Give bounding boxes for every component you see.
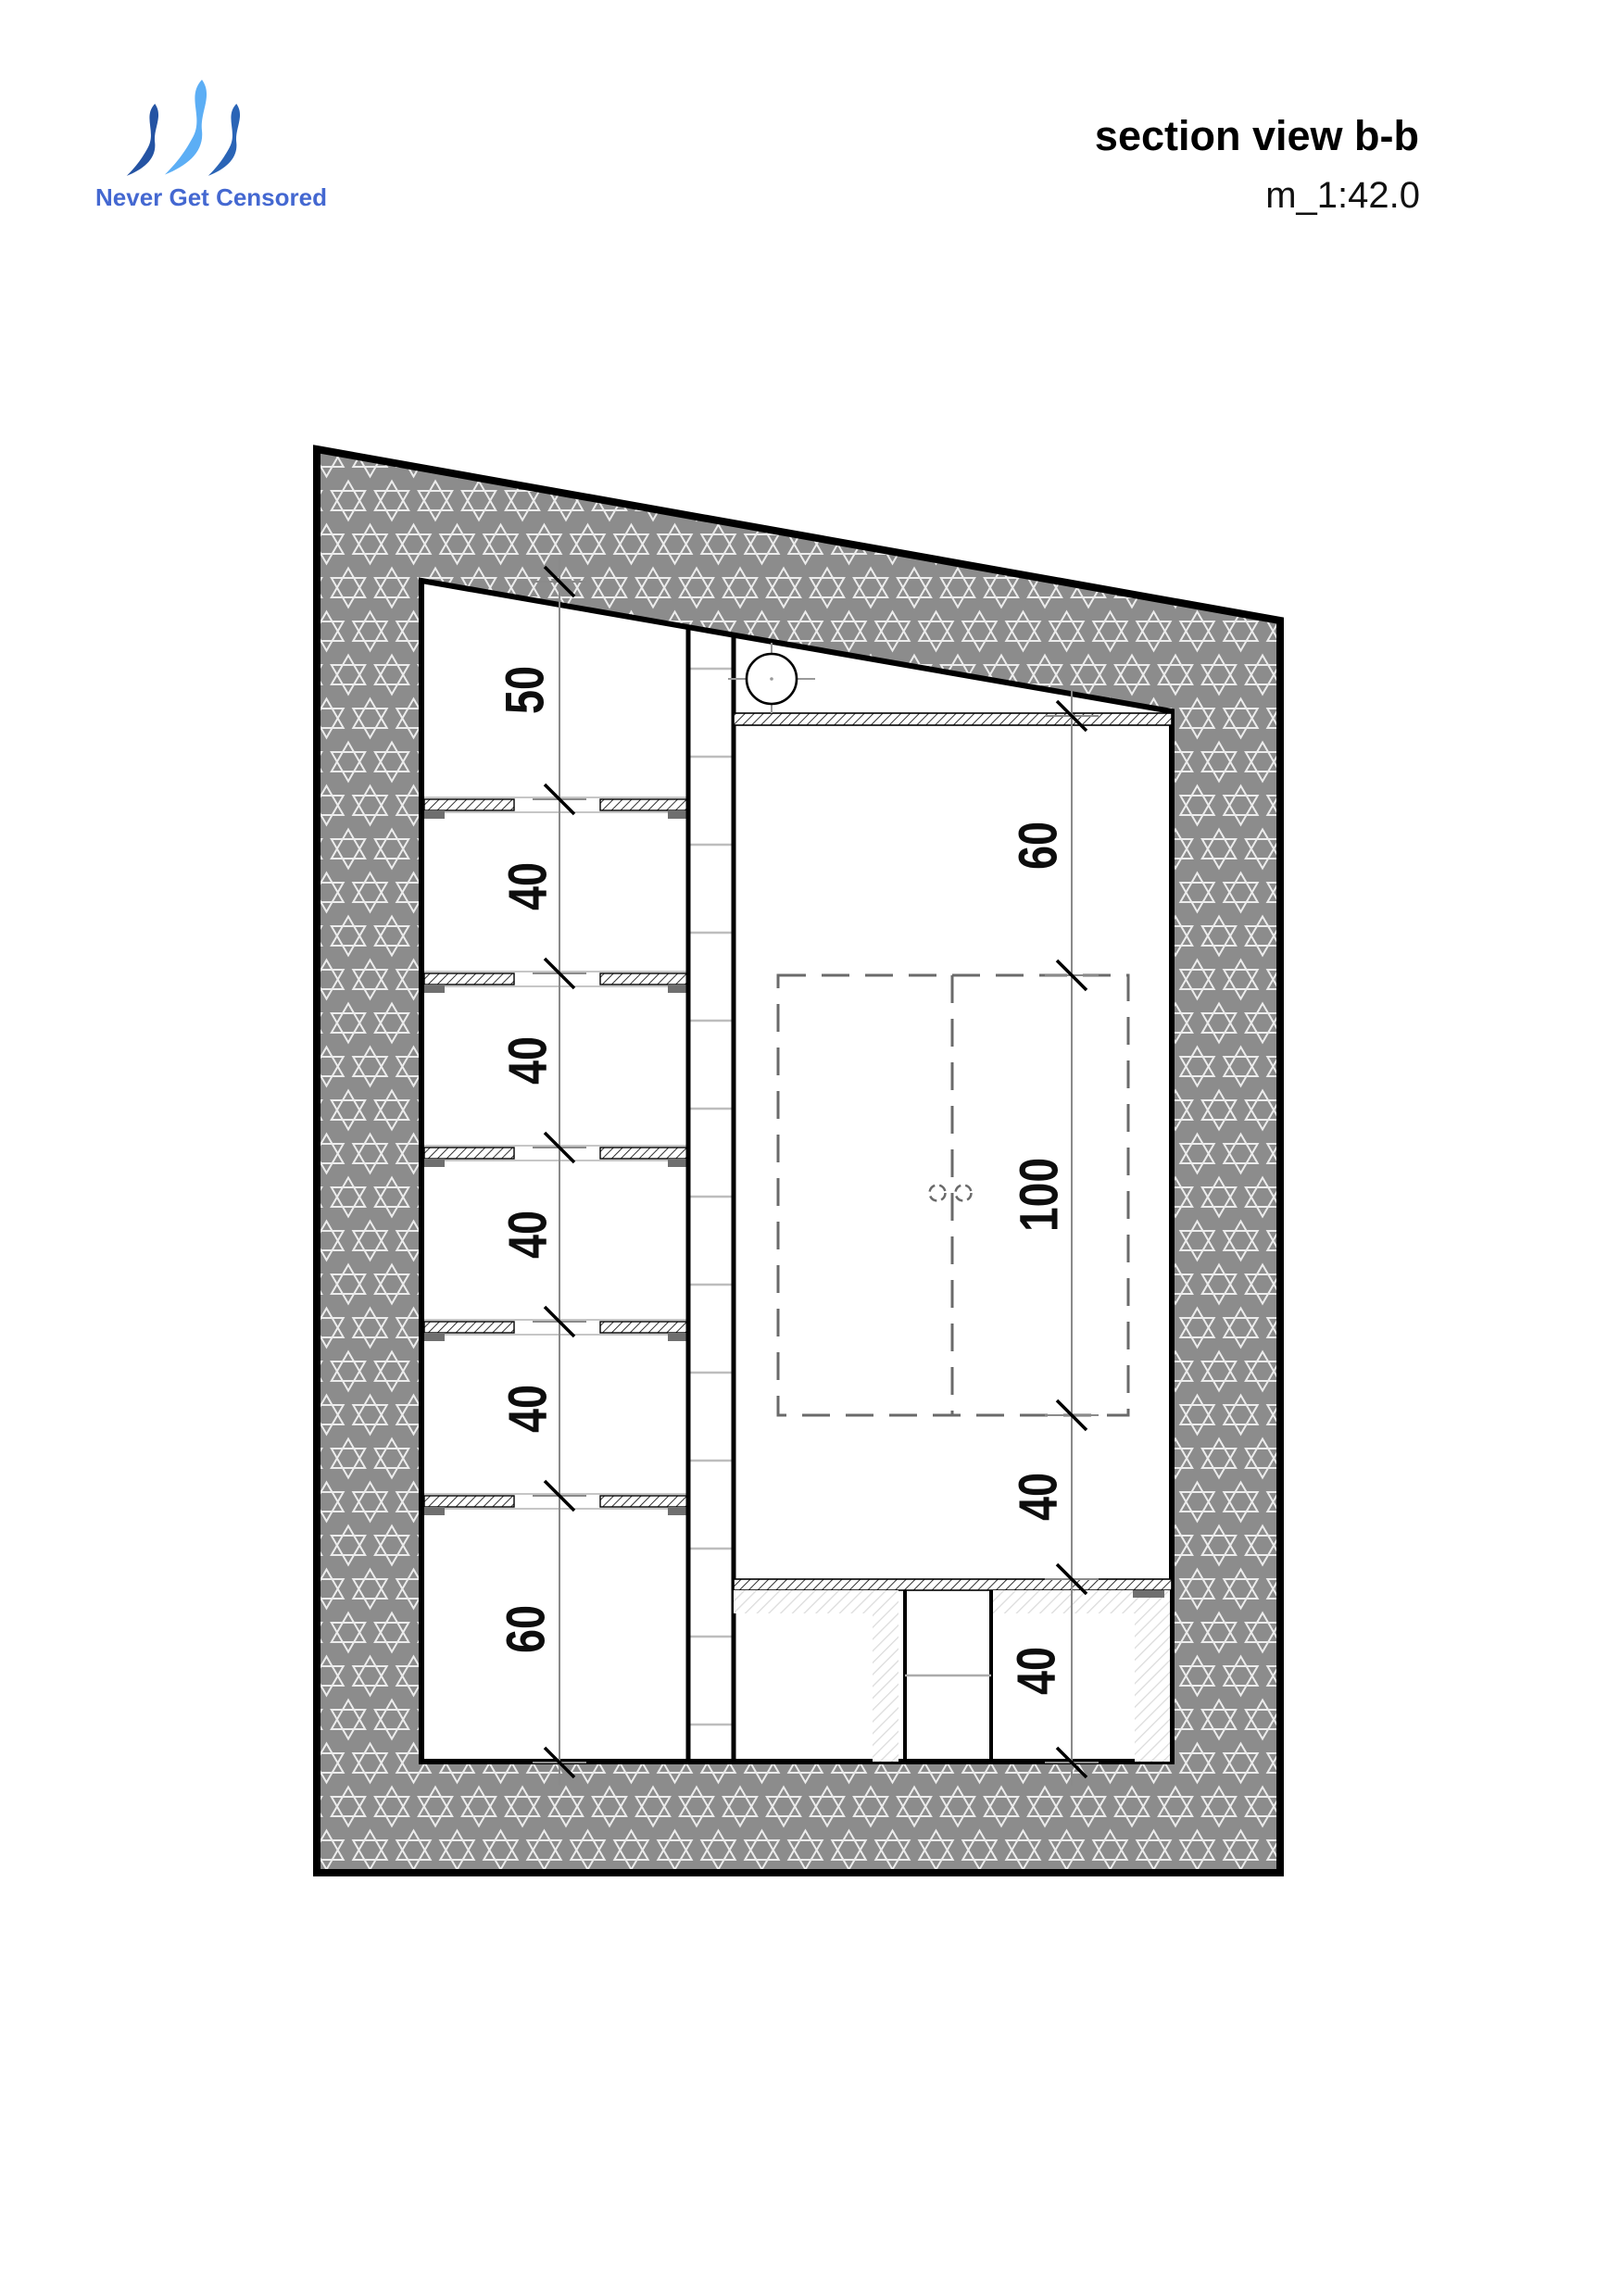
dim-left-40d: 40 — [498, 1385, 559, 1433]
dim-left-40b: 40 — [498, 1036, 559, 1085]
dim-left-40a: 40 — [498, 862, 559, 910]
flame-left-icon — [127, 104, 158, 176]
dim-right-60: 60 — [1009, 822, 1069, 870]
dim-left-50: 50 — [496, 666, 556, 714]
title-block: section view b-b m_1:42.0 — [1095, 112, 1420, 216]
page: Never Get Censored section view b-b m_1:… — [0, 0, 1621, 2296]
logo: Never Get Censored — [95, 80, 327, 211]
logo-tagline: Never Get Censored — [95, 183, 327, 211]
dim-right-100: 100 — [1010, 1158, 1070, 1232]
section-drawing: Never Get Censored section view b-b m_1:… — [0, 0, 1621, 2296]
dim-left-60: 60 — [496, 1605, 557, 1653]
flame-right-icon — [208, 104, 240, 176]
floor-slab-right — [734, 1579, 1172, 1590]
dim-left-40c: 40 — [498, 1211, 559, 1259]
dim-right-40a: 40 — [1009, 1473, 1069, 1521]
dim-right-40b: 40 — [1007, 1647, 1067, 1695]
drawing-title: section view b-b — [1095, 112, 1419, 159]
drawing-scale: m_1:42.0 — [1265, 175, 1420, 216]
flame-middle-icon — [165, 80, 207, 175]
ceiling-beam — [734, 713, 1172, 725]
